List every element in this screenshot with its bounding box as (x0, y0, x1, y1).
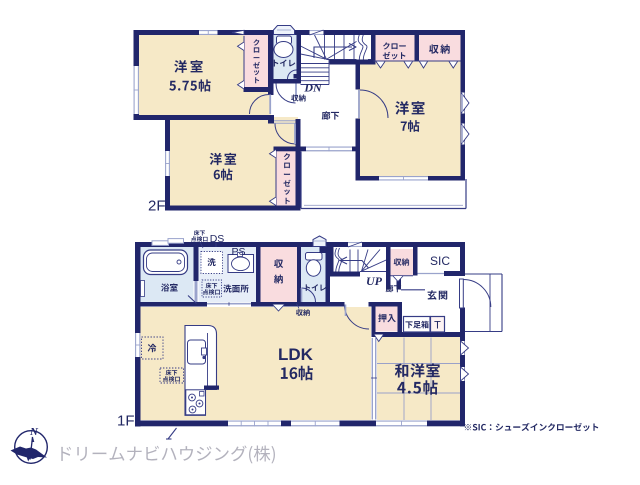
svg-text:T: T (434, 320, 441, 332)
svg-text:DN: DN (303, 81, 323, 95)
svg-text:SIC: SIC (430, 254, 450, 268)
svg-text:2F: 2F (148, 198, 166, 215)
svg-text:1F: 1F (117, 413, 135, 430)
svg-text:UP: UP (366, 274, 383, 288)
svg-text:LDK: LDK (278, 345, 314, 364)
svg-text:PS: PS (231, 246, 245, 258)
svg-text:N: N (29, 426, 39, 438)
svg-text:DS: DS (210, 233, 225, 245)
